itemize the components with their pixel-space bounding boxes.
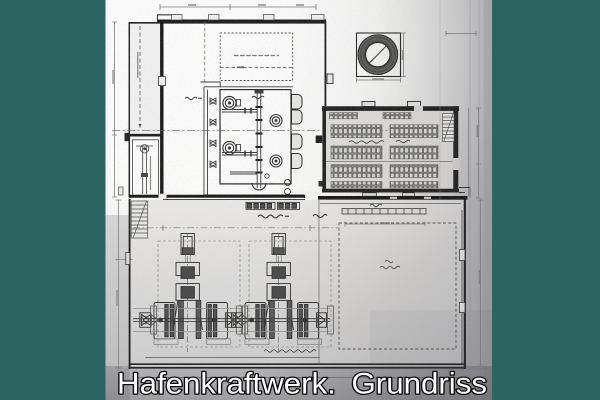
svg-text:Hafenkraftwerk. Grundriss: Hafenkraftwerk. Grundriss bbox=[117, 368, 487, 400]
